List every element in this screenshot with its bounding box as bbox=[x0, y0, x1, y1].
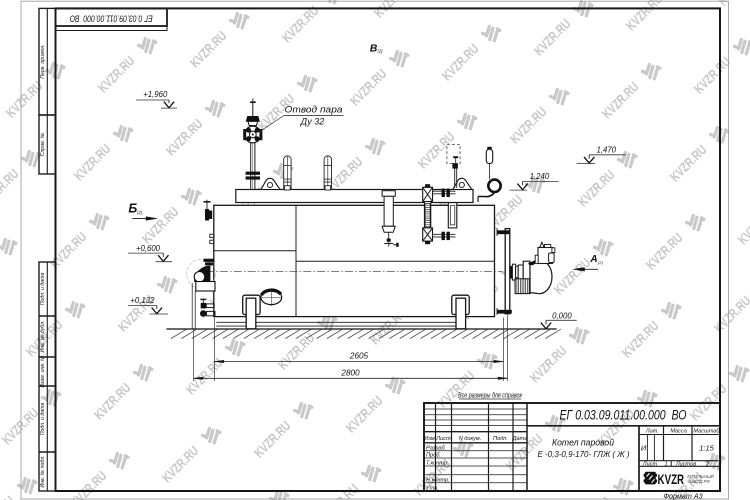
svg-text:Дата: Дата bbox=[512, 436, 528, 442]
svg-text:Перв. примен.: Перв. примен. bbox=[40, 44, 46, 78]
svg-text:Изм: Изм bbox=[424, 436, 435, 442]
svg-text:1: 1 bbox=[664, 461, 667, 467]
svg-text:+0,600: +0,600 bbox=[136, 244, 161, 253]
svg-text:(2): (2) bbox=[377, 49, 383, 54]
svg-text:+1,960: +1,960 bbox=[143, 90, 168, 99]
svg-text:Взам. инв. №: Взам. инв. № bbox=[40, 355, 46, 387]
svg-text:Подп.: Подп. bbox=[493, 436, 508, 442]
svg-text:N докум.: N докум. bbox=[459, 436, 482, 442]
svg-text:Инв. № подл.: Инв. № подл. bbox=[40, 455, 46, 487]
svg-text:0,000: 0,000 bbox=[552, 311, 572, 320]
svg-text:Т.контр.: Т.контр. bbox=[426, 461, 449, 467]
svg-text:2605: 2605 bbox=[349, 352, 369, 361]
svg-text:ЕГ 0.03.09.011.00.000 ВО: ЕГ 0.03.09.011.00.000 ВО bbox=[560, 408, 687, 423]
svg-text:Подп. и дата: Подп. и дата bbox=[40, 403, 46, 436]
svg-text:Справ. №: Справ. № bbox=[40, 132, 46, 156]
svg-text:Ду 32: Ду 32 bbox=[300, 117, 324, 127]
svg-text:(2): (2) bbox=[137, 210, 143, 215]
svg-text:ЕГ 0.03.09.011.00.000 ВО: ЕГ 0.03.09.011.00.000 ВО bbox=[70, 14, 153, 24]
svg-text:+0,132: +0,132 bbox=[130, 296, 155, 305]
svg-text:(2): (2) bbox=[598, 260, 604, 265]
svg-text:Отвод пара: Отвод пара bbox=[285, 105, 343, 115]
svg-text:Е -0,3-0,9-170- ГЛЖ ( Ж ): Е -0,3-0,9-170- ГЛЖ ( Ж ) bbox=[538, 449, 630, 459]
svg-text:2800: 2800 bbox=[340, 368, 360, 377]
svg-text:Проб.: Проб. bbox=[426, 453, 441, 459]
svg-text:А: А bbox=[589, 254, 597, 265]
svg-text:Котел паровой: Котел паровой bbox=[552, 438, 615, 449]
svg-text:Масштаб: Масштаб bbox=[693, 428, 720, 434]
svg-text:Подп. и дата: Подп. и дата bbox=[40, 273, 46, 306]
svg-text:KVZR: KVZR bbox=[658, 471, 685, 487]
svg-text:Листов: Листов bbox=[675, 461, 696, 467]
svg-text:1,240: 1,240 bbox=[530, 172, 550, 181]
svg-text:И: И bbox=[641, 444, 647, 453]
svg-text:1:15: 1:15 bbox=[699, 444, 714, 453]
svg-text:ЗАВОД.РФ: ЗАВОД.РФ bbox=[688, 479, 710, 484]
svg-text:Н.контр.: Н.контр. bbox=[426, 477, 450, 483]
svg-text:Лит.: Лит. bbox=[645, 428, 659, 434]
svg-text:Разраб.: Разраб. bbox=[426, 445, 446, 451]
svg-text:Формат А3: Формат А3 bbox=[663, 492, 702, 500]
svg-text:Инв. № дубл.: Инв. № дубл. bbox=[40, 321, 46, 353]
svg-text:Все размеры для справок: Все размеры для справок bbox=[458, 391, 523, 399]
svg-text:1,470: 1,470 bbox=[597, 145, 617, 154]
svg-text:Лист: Лист bbox=[642, 461, 658, 467]
svg-text:Масса: Масса bbox=[670, 428, 687, 434]
svg-text:Утв.: Утв. bbox=[425, 485, 439, 491]
svg-text:Лист: Лист bbox=[435, 436, 451, 442]
